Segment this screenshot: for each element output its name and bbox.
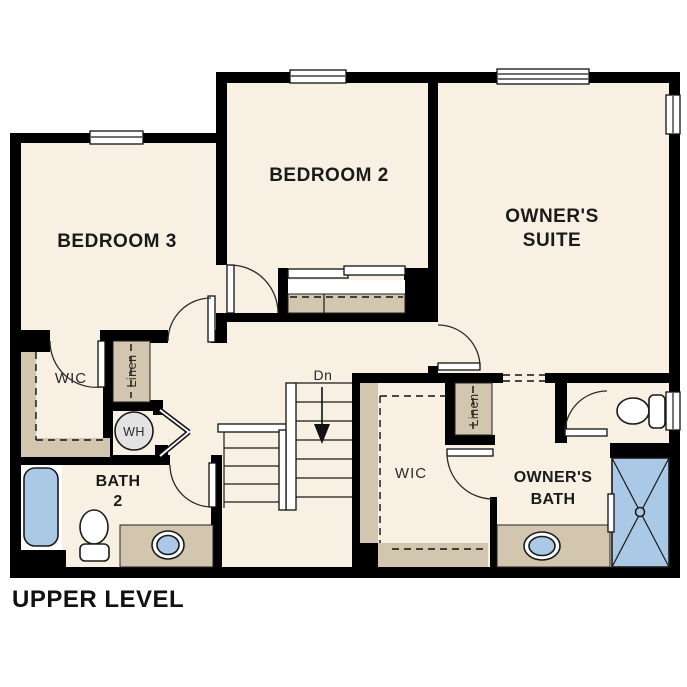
bathtub (24, 468, 58, 546)
stair-half-wall (218, 424, 288, 432)
water-heater-label: WH (123, 425, 145, 439)
bath2-label-line2: 2 (113, 493, 122, 510)
floor-plan-drawing: BEDROOM 3 BEDROOM 2 OWNER'S SUITE WIC WI… (0, 0, 687, 687)
bedroom2-label: BEDROOM 2 (269, 165, 389, 186)
wic-right-shelf-bottom (378, 543, 488, 567)
bedroom2-closet-interior (288, 280, 405, 294)
wic-right-shelf (360, 383, 378, 543)
owners-bath-label-line2: BATH (531, 491, 576, 508)
bath2-toilet-tank (80, 544, 109, 561)
bedroom2-door (227, 265, 234, 313)
owners-toilet-bowl (617, 398, 649, 424)
owners-suite-window (497, 69, 589, 84)
bath2-label-line1: BATH (96, 473, 141, 490)
wic-left-label: WIC (55, 370, 87, 387)
bedroom3-door (208, 296, 215, 342)
floor-area (10, 72, 680, 578)
bath2-toilet-bowl (80, 510, 108, 544)
page-title: UPPER LEVEL (12, 586, 184, 613)
wic-right-door (447, 449, 493, 456)
owners-suite-door (438, 363, 480, 370)
wic-left-shelf-bottom (21, 438, 110, 457)
owners-toilet-tank (649, 395, 665, 428)
linen-left-label: Linen (125, 354, 139, 387)
bath2-door (209, 463, 216, 507)
wic-left-door (98, 341, 105, 387)
owners-bath-label-line1: OWNER'S (514, 469, 593, 486)
linen-right-label: Linen (467, 393, 481, 426)
stair-railing (286, 383, 296, 510)
shower (608, 458, 669, 567)
wic-right-label: WIC (395, 465, 427, 482)
toilet-room-door (565, 429, 607, 436)
shower-drain (636, 508, 645, 517)
shower-door (608, 494, 614, 532)
stair-railing-lower (279, 430, 286, 510)
owners-suite-label-line1: OWNER'S (505, 206, 599, 227)
stair-down-label: Dn (314, 367, 333, 383)
owners-suite-label-line2: SUITE (523, 230, 581, 251)
bedroom3-label: BEDROOM 3 (57, 231, 177, 252)
floor-plan: BEDROOM 3 BEDROOM 2 OWNER'S SUITE WIC WI… (0, 0, 687, 687)
